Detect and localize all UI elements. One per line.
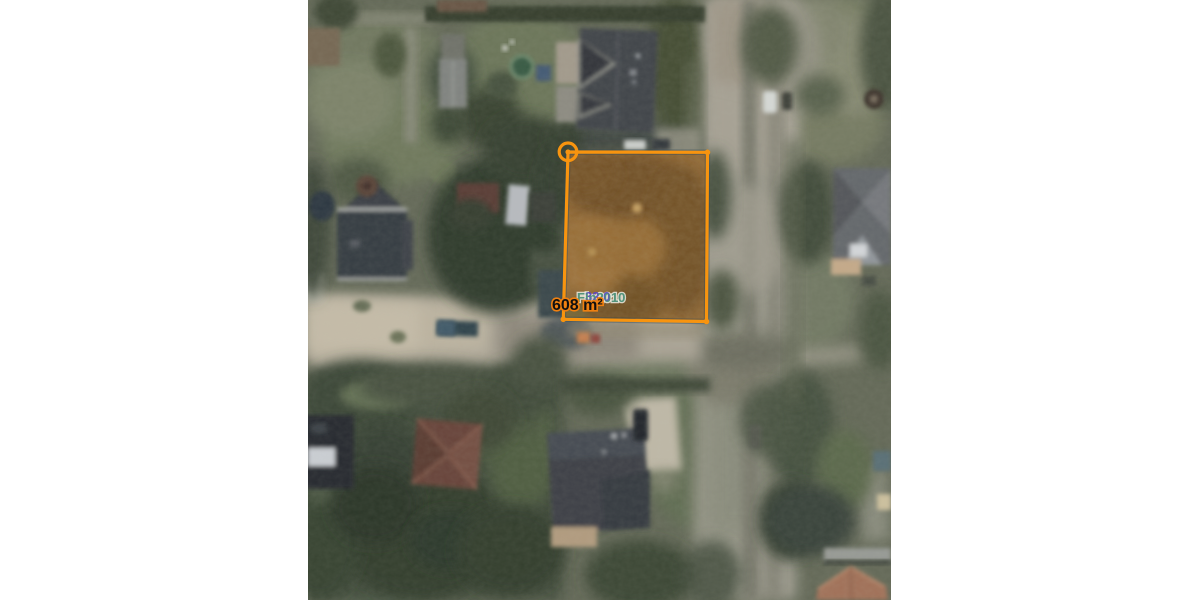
svg-text:608 m²: 608 m² (552, 297, 603, 314)
